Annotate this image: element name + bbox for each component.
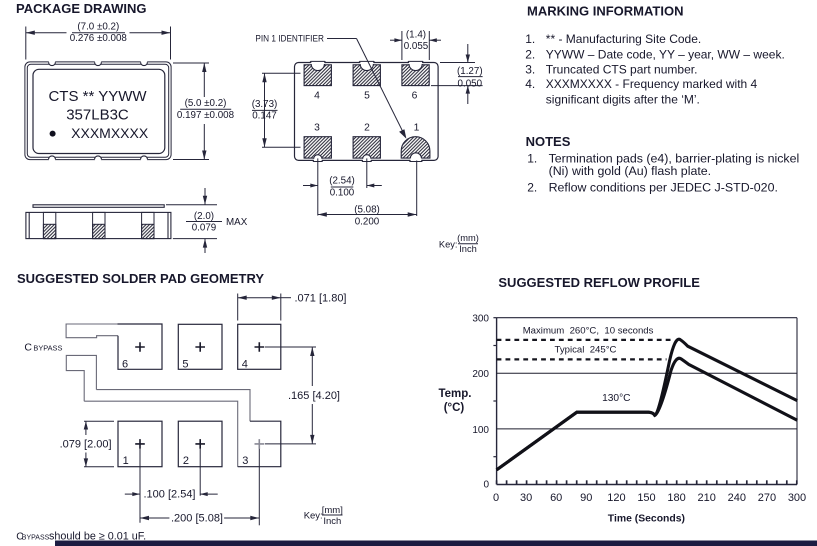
svg-text:2.: 2. [525,48,535,62]
svg-text:1.: 1. [527,151,537,165]
svg-text:3: 3 [314,122,320,133]
svg-text:5: 5 [182,359,188,371]
svg-text:120: 120 [607,492,625,504]
svg-text:3.: 3. [525,62,535,76]
svg-text:Temp.: Temp. [438,388,471,400]
svg-text:3: 3 [242,455,248,467]
svg-text:357LB3C: 357LB3C [66,107,129,124]
svg-text:0: 0 [483,480,489,491]
svg-text:Reflow conditions per JEDEC J-: Reflow conditions per JEDEC J-STD-020. [549,180,778,194]
svg-text:6: 6 [122,359,128,371]
svg-text:30: 30 [520,492,532,504]
svg-text:5: 5 [364,91,370,102]
svg-text:MARKING INFORMATION: MARKING INFORMATION [527,3,683,18]
svg-text:100: 100 [472,425,489,436]
svg-text:2: 2 [364,122,370,133]
svg-text:(3.73): (3.73) [252,99,278,110]
svg-text:(7.0 ±0.2): (7.0 ±0.2) [77,22,119,33]
svg-text:(°C): (°C) [444,402,465,414]
svg-text:150: 150 [637,492,655,504]
svg-text:PACKAGE DRAWING: PACKAGE DRAWING [16,1,146,16]
svg-text:0.055: 0.055 [404,41,429,52]
svg-text:0.276 ±0.008: 0.276 ±0.008 [70,33,128,44]
svg-text:(1.4): (1.4) [406,29,426,40]
svg-text:0.050: 0.050 [458,78,483,89]
svg-text:300: 300 [472,313,489,324]
svg-text:.079 [2.00]: .079 [2.00] [60,439,112,451]
svg-text:Inch: Inch [323,516,341,527]
svg-text:2.: 2. [527,180,537,194]
svg-text:[mm]: [mm] [322,505,343,516]
svg-text:CTS ** YYWW: CTS ** YYWW [48,88,147,105]
svg-text:180: 180 [667,492,685,504]
svg-text:.071 [1.80]: .071 [1.80] [295,293,347,305]
svg-text:0.197 ±0.008: 0.197 ±0.008 [177,110,235,121]
svg-text:0.200: 0.200 [355,217,380,228]
svg-text:(5.08): (5.08) [354,204,380,215]
svg-text:Key:: Key: [439,239,458,249]
svg-text:90: 90 [580,492,592,504]
svg-text:XXXMXXXX - Frequency marked wi: XXXMXXXX - Frequency marked with 4 [546,77,758,91]
svg-text:** - Manufacturing Site Code.: ** - Manufacturing Site Code. [546,32,701,46]
svg-text:C: C [24,342,32,354]
svg-text:XXXMXXXX: XXXMXXXX [71,125,149,141]
svg-text:Typical 245°C: Typical 245°C [555,344,617,355]
svg-text:200: 200 [472,369,489,380]
svg-text:.165 [4.20]: .165 [4.20] [288,390,340,402]
svg-text:.100 [2.54]: .100 [2.54] [144,489,196,501]
svg-text:0.147: 0.147 [252,111,277,122]
svg-text:300: 300 [788,492,806,504]
svg-text:(mm): (mm) [457,233,479,243]
svg-text:PIN 1 IDENTIFIER: PIN 1 IDENTIFIER [255,33,324,43]
svg-text:(Ni) with gold (Au) flash plat: (Ni) with gold (Au) flash plate. [549,164,712,178]
svg-text:YYWW – Date code, YY – year, W: YYWW – Date code, YY – year, WW – week. [546,48,785,62]
svg-text:2: 2 [183,455,189,467]
svg-text:270: 270 [758,492,776,504]
svg-text:BYPASS: BYPASS [33,344,62,353]
svg-text:0.100: 0.100 [330,187,355,198]
svg-text:Time (Seconds): Time (Seconds) [608,514,685,525]
svg-text:BYPASS: BYPASS [22,535,50,542]
svg-text:6: 6 [412,91,418,102]
svg-text:4.: 4. [525,77,535,91]
svg-text:(5.0 ±0.2): (5.0 ±0.2) [185,98,227,109]
svg-text:210: 210 [698,492,716,504]
svg-text:.200 [5.08]: .200 [5.08] [171,513,223,525]
svg-text:SUGGESTED SOLDER PAD GEOMETRY: SUGGESTED SOLDER PAD GEOMETRY [17,271,264,286]
svg-text:4: 4 [242,359,248,371]
svg-text:1: 1 [414,122,420,133]
svg-text:(2.54): (2.54) [329,175,355,186]
svg-text:1: 1 [123,455,129,467]
svg-text:0.079: 0.079 [192,223,217,234]
svg-text:Inch: Inch [459,244,477,254]
svg-text:MAX: MAX [226,217,248,228]
svg-text:Maximum 260°C, 10 seconds: Maximum 260°C, 10 seconds [523,326,654,337]
svg-text:130°C: 130°C [602,393,630,404]
svg-text:4: 4 [314,91,320,102]
svg-text:(1.27): (1.27) [457,66,483,77]
svg-text:Truncated CTS part number.: Truncated CTS part number. [546,62,698,76]
svg-text:60: 60 [550,492,562,504]
svg-text:SUGGESTED REFLOW PROFILE: SUGGESTED REFLOW PROFILE [498,275,700,290]
svg-text:0: 0 [493,492,499,504]
svg-text:NOTES: NOTES [526,134,571,149]
svg-text:significant digits after the ‘: significant digits after the ‘M’. [546,92,700,106]
svg-text:240: 240 [728,492,746,504]
svg-text:Key:: Key: [304,510,323,521]
svg-text:(2.0): (2.0) [194,211,214,222]
svg-text:1.: 1. [525,32,535,46]
